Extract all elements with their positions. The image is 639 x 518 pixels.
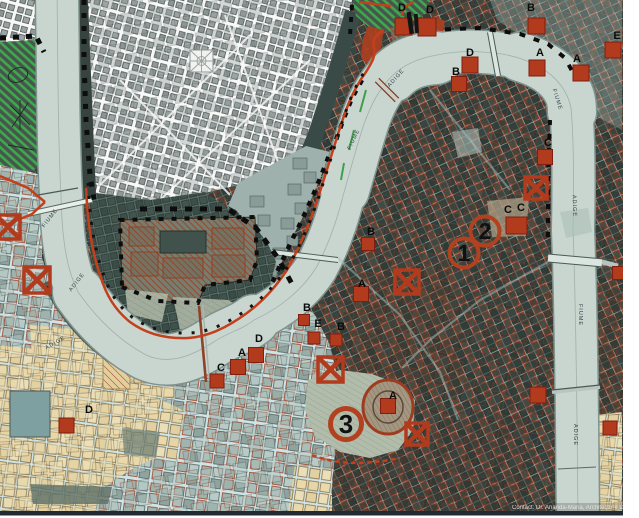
svg-text:B: B <box>337 321 345 333</box>
svg-text:D: D <box>466 47 474 59</box>
svg-text:C: C <box>544 137 552 149</box>
svg-text:D: D <box>85 404 93 416</box>
svg-text:ADIGE: ADIGE <box>571 195 578 217</box>
svg-text:A: A <box>238 347 246 359</box>
svg-text:1: 1 <box>458 240 471 266</box>
svg-text:FIUME: FIUME <box>577 304 583 326</box>
svg-text:3: 3 <box>339 409 353 439</box>
svg-text:C: C <box>504 204 512 216</box>
svg-text:E: E <box>613 30 620 42</box>
svg-text:A: A <box>358 278 366 290</box>
svg-text:2: 2 <box>479 218 492 244</box>
svg-text:C: C <box>217 362 225 374</box>
svg-text:B: B <box>527 2 535 14</box>
svg-text:C: C <box>517 202 525 214</box>
svg-text:B: B <box>367 226 375 238</box>
svg-text:ADIGE: ADIGE <box>572 424 578 446</box>
svg-text:A: A <box>536 47 544 59</box>
svg-text:B: B <box>452 66 460 78</box>
svg-text:D: D <box>426 4 434 16</box>
svg-text:B: B <box>303 302 311 314</box>
svg-text:A: A <box>389 390 397 402</box>
svg-text:E: E <box>314 318 321 330</box>
svg-text:A: A <box>573 53 581 65</box>
svg-text:D: D <box>255 333 263 345</box>
svg-text:D: D <box>398 2 406 14</box>
svg-text:Contact: Dr. Ananda-Maria, Arc: Contact: Dr. Ananda-Maria, Architecture … <box>512 505 639 511</box>
